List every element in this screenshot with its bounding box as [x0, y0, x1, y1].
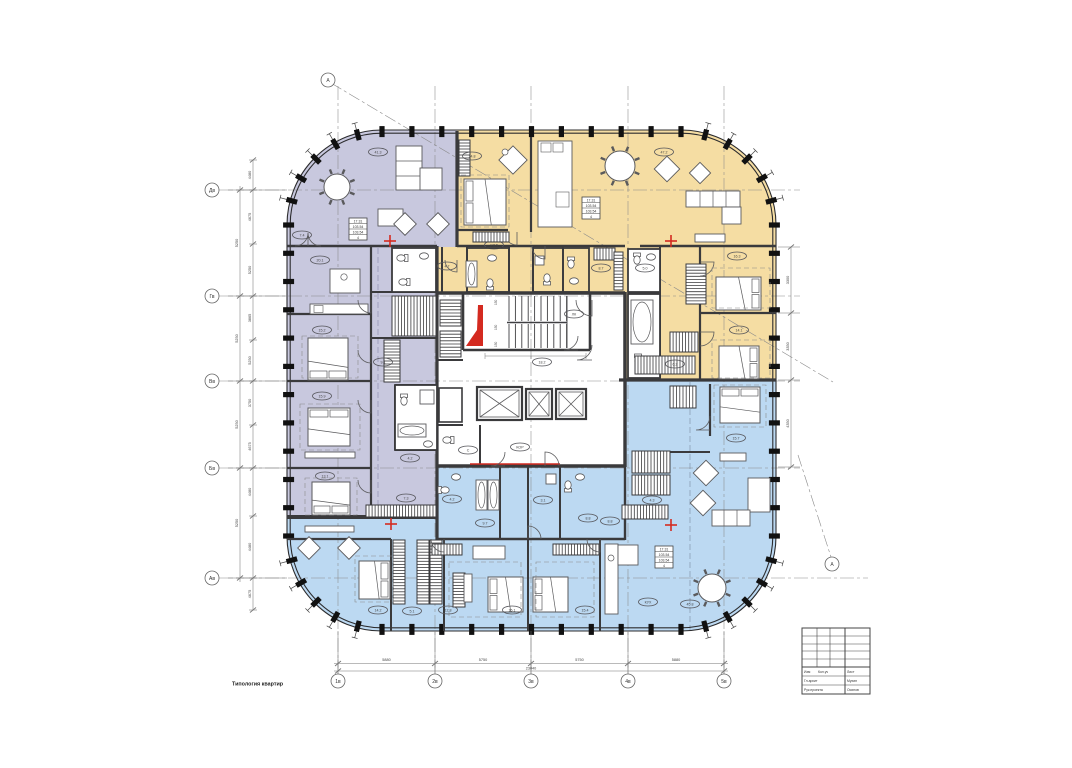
svg-text:4: 4 — [590, 215, 592, 219]
svg-text:Лист: Лист — [847, 670, 855, 674]
svg-text:2в: 2в — [432, 679, 438, 685]
svg-text:4675: 4675 — [248, 213, 252, 221]
svg-text:5.0: 5.0 — [643, 266, 648, 270]
svg-text:14.8: 14.8 — [469, 154, 476, 158]
svg-text:5250: 5250 — [235, 334, 239, 342]
svg-text:47.2: 47.2 — [661, 150, 668, 154]
svg-text:Дв: Дв — [209, 188, 215, 194]
svg-text:9.1: 9.1 — [381, 360, 386, 364]
svg-text:5880: 5880 — [672, 658, 680, 662]
svg-text:41.3: 41.3 — [375, 150, 382, 154]
svg-text:4в: 4в — [625, 679, 631, 685]
svg-text:КОР: КОР — [516, 445, 524, 449]
svg-text:150: 150 — [494, 324, 498, 330]
svg-text:8.7: 8.7 — [599, 266, 604, 270]
svg-text:Гл.архит: Гл.архит — [804, 679, 818, 683]
svg-text:103.54: 103.54 — [353, 230, 364, 234]
svg-text:5250: 5250 — [235, 420, 239, 428]
svg-text:3300: 3300 — [786, 276, 790, 284]
svg-text:17.31: 17.31 — [587, 198, 596, 202]
svg-text:4.3: 4.3 — [650, 498, 655, 502]
svg-text:5250: 5250 — [235, 239, 239, 247]
svg-text:14.2: 14.2 — [375, 608, 382, 612]
svg-text:3750: 3750 — [248, 399, 252, 407]
svg-text:Изм: Изм — [804, 670, 811, 674]
svg-text:5250: 5250 — [248, 356, 252, 364]
svg-text:103.54: 103.54 — [659, 553, 670, 557]
svg-text:Осипов: Осипов — [847, 688, 859, 692]
svg-text:4675: 4675 — [248, 442, 252, 450]
svg-text:12.8: 12.8 — [445, 608, 452, 612]
svg-text:Рук.проекта: Рук.проекта — [804, 688, 823, 692]
svg-text:4.2: 4.2 — [450, 497, 455, 501]
svg-text:9.7: 9.7 — [483, 521, 488, 525]
svg-text:17.31: 17.31 — [354, 219, 363, 223]
svg-text:7.3: 7.3 — [404, 496, 409, 500]
svg-text:4.2: 4.2 — [408, 456, 413, 460]
svg-text:103.54: 103.54 — [586, 209, 597, 213]
svg-text:ХОЛ: ХОЛ — [490, 243, 498, 247]
svg-text:4350: 4350 — [786, 419, 790, 427]
svg-text:4: 4 — [663, 564, 665, 568]
svg-text:5750: 5750 — [479, 658, 487, 662]
svg-text:15.7: 15.7 — [733, 436, 740, 440]
svg-text:Ав: Ав — [209, 576, 215, 582]
svg-text:16.1: 16.1 — [509, 608, 516, 612]
svg-text:8.8: 8.8 — [608, 519, 613, 523]
svg-text:Вв: Вв — [209, 379, 215, 385]
svg-text:20.1: 20.1 — [317, 258, 324, 262]
svg-text:5.1: 5.1 — [410, 609, 415, 613]
svg-text:103.54: 103.54 — [353, 225, 364, 229]
svg-text:Кол.уч: Кол.уч — [818, 670, 828, 674]
svg-text:17.31: 17.31 — [660, 547, 669, 551]
svg-text:103.54: 103.54 — [586, 204, 597, 208]
svg-text:С: С — [467, 448, 470, 452]
svg-text:7.4: 7.4 — [300, 233, 305, 237]
svg-text:15.4: 15.4 — [582, 608, 589, 612]
svg-text:3в: 3в — [528, 679, 534, 685]
svg-text:4675: 4675 — [248, 590, 252, 598]
svg-text:45.8: 45.8 — [687, 602, 694, 606]
svg-text:8.8: 8.8 — [586, 516, 591, 520]
svg-text:1в: 1в — [335, 679, 341, 685]
svg-text:5750: 5750 — [575, 658, 583, 662]
svg-text:Бв: Бв — [209, 466, 215, 472]
svg-text:5250: 5250 — [235, 519, 239, 527]
svg-text:6.2: 6.2 — [673, 362, 678, 366]
svg-text:15.9: 15.9 — [319, 394, 326, 398]
svg-text:3.1: 3.1 — [541, 498, 546, 502]
svg-text:150: 150 — [494, 341, 498, 347]
svg-text:5880: 5880 — [382, 658, 390, 662]
svg-text:3350: 3350 — [786, 342, 790, 350]
svg-text:13.1: 13.1 — [322, 474, 329, 478]
svg-text:5250: 5250 — [248, 266, 252, 274]
svg-text:103.54: 103.54 — [659, 558, 670, 562]
svg-text:5в: 5в — [721, 679, 727, 685]
svg-text:4480: 4480 — [248, 171, 252, 179]
svg-text:18.2: 18.2 — [539, 360, 546, 364]
svg-text:3865: 3865 — [248, 314, 252, 322]
svg-text:КУХ: КУХ — [645, 600, 652, 604]
svg-text:Мухин: Мухин — [847, 679, 857, 683]
svg-text:16.3: 16.3 — [734, 254, 741, 258]
svg-text:4480: 4480 — [248, 488, 252, 496]
svg-text:14.1: 14.1 — [736, 328, 743, 332]
svg-text:23040: 23040 — [526, 667, 537, 671]
svg-text:4480: 4480 — [248, 543, 252, 551]
svg-text:150: 150 — [494, 299, 498, 305]
svg-text:15.2: 15.2 — [319, 328, 326, 332]
svg-text:Типология квартир: Типология квартир — [232, 682, 284, 688]
svg-text:Гв: Гв — [209, 294, 214, 300]
svg-text:4: 4 — [357, 236, 359, 240]
